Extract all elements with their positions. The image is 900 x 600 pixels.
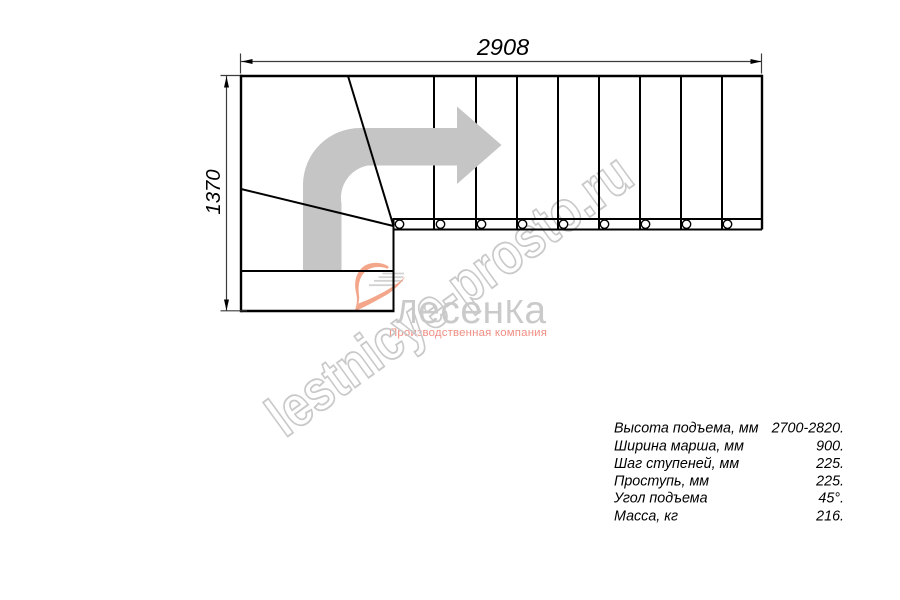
svg-text:Высота подъема, мм: Высота подъема, мм (614, 420, 759, 436)
svg-text:225.: 225. (815, 473, 844, 489)
svg-text:900.: 900. (816, 438, 844, 454)
svg-text:1370: 1370 (203, 169, 225, 215)
svg-text:Угол подъема: Угол подъема (613, 490, 708, 506)
svg-text:225.: 225. (815, 456, 844, 472)
svg-text:216.: 216. (815, 509, 844, 525)
svg-text:2700-2820.: 2700-2820. (771, 420, 844, 436)
svg-text:Шаг ступеней, мм: Шаг ступеней, мм (614, 456, 739, 472)
svg-text:45°.: 45°. (818, 490, 844, 506)
svg-text:2908: 2908 (476, 34, 529, 60)
svg-text:Проступь, мм: Проступь, мм (614, 473, 709, 489)
svg-text:Масса, кг: Масса, кг (614, 509, 678, 525)
svg-text:Ширина марша, мм: Ширина марша, мм (614, 438, 744, 454)
